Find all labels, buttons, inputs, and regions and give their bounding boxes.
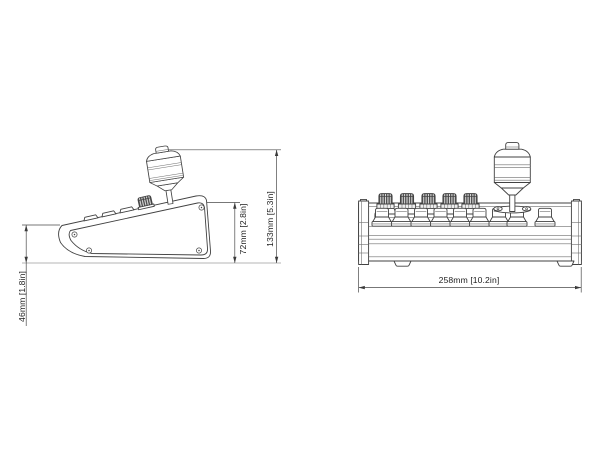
- foot: [557, 261, 574, 266]
- dim-label-46mm: 46mm [1.8in]: [17, 271, 27, 322]
- dimension-133mm: 133mm [5.3in]: [265, 150, 278, 263]
- dim-label-72mm: 72mm [2.8in]: [238, 204, 248, 255]
- technical-dimension-drawing: 46mm [1.8in] 72mm [2.8in] 133mm [5.3in]: [0, 0, 600, 450]
- screw-icon: [86, 248, 91, 253]
- dim-label-258mm: 258mm [10.2in]: [439, 275, 500, 285]
- drawing-svg: 46mm [1.8in] 72mm [2.8in] 133mm [5.3in]: [0, 0, 600, 450]
- dimension-46mm: 46mm [1.8in]: [17, 225, 28, 326]
- right-end-cap: [571, 199, 581, 264]
- left-end-cap: [359, 199, 369, 264]
- screw-icon: [199, 205, 204, 210]
- front-view: 258mm [10.2in]: [359, 142, 582, 292]
- dim-label-133mm: 133mm [5.3in]: [265, 191, 275, 247]
- joystick-front: [494, 142, 531, 213]
- screw-icon: [196, 248, 201, 253]
- dimension-72mm: 72mm [2.8in]: [233, 203, 248, 264]
- side-view: 46mm [1.8in] 72mm [2.8in] 133mm [5.3in]: [17, 144, 281, 326]
- screw-icon: [72, 232, 77, 237]
- foot: [394, 261, 411, 266]
- dimension-258mm: 258mm [10.2in]: [359, 267, 582, 293]
